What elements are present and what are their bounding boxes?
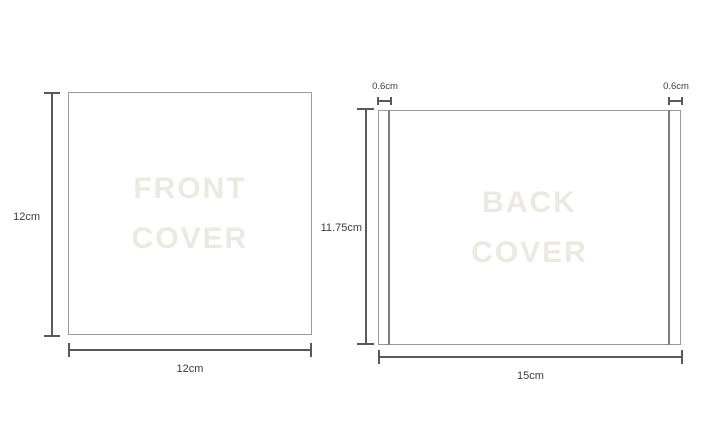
- left-spine-dimension: [377, 97, 392, 105]
- front-cover-watermark: FRONT COVER: [69, 164, 311, 264]
- front-height-dimension: [44, 92, 60, 337]
- front-height-label: 12cm: [4, 211, 40, 223]
- left-spine-label: 0.6cm: [363, 81, 407, 93]
- dimension-line: [365, 108, 367, 345]
- back-watermark-line1: BACK: [379, 178, 680, 228]
- front-watermark-line2: COVER: [69, 214, 311, 264]
- back-width-label: 15cm: [378, 370, 683, 382]
- back-height-label: 11.75cm: [310, 222, 362, 234]
- dimension-cap: [310, 343, 312, 357]
- back-cover-right-spine-line: [668, 110, 670, 345]
- dimension-line: [378, 356, 683, 358]
- front-watermark-line1: FRONT: [69, 164, 311, 214]
- right-spine-label: 0.6cm: [654, 81, 698, 93]
- dimension-cap: [681, 350, 683, 364]
- front-width-label: 12cm: [68, 363, 312, 375]
- diagram-canvas: FRONT COVER 12cm 12cm BACK COVER 0.6cm 0…: [0, 0, 720, 436]
- right-spine-dimension: [668, 97, 683, 105]
- back-watermark-line2: COVER: [379, 228, 680, 278]
- front-width-dimension: [68, 343, 312, 357]
- dimension-line: [68, 349, 312, 351]
- dimension-cap: [681, 97, 683, 105]
- back-cover-box: BACK COVER: [378, 110, 681, 345]
- dimension-cap: [390, 97, 392, 105]
- dimension-cap: [44, 335, 60, 337]
- dimension-cap: [357, 343, 374, 345]
- back-cover-watermark: BACK COVER: [379, 178, 680, 278]
- back-cover-left-spine-line: [388, 110, 390, 345]
- back-width-dimension: [378, 350, 683, 364]
- dimension-line: [51, 92, 53, 337]
- front-cover-box: FRONT COVER: [68, 92, 312, 335]
